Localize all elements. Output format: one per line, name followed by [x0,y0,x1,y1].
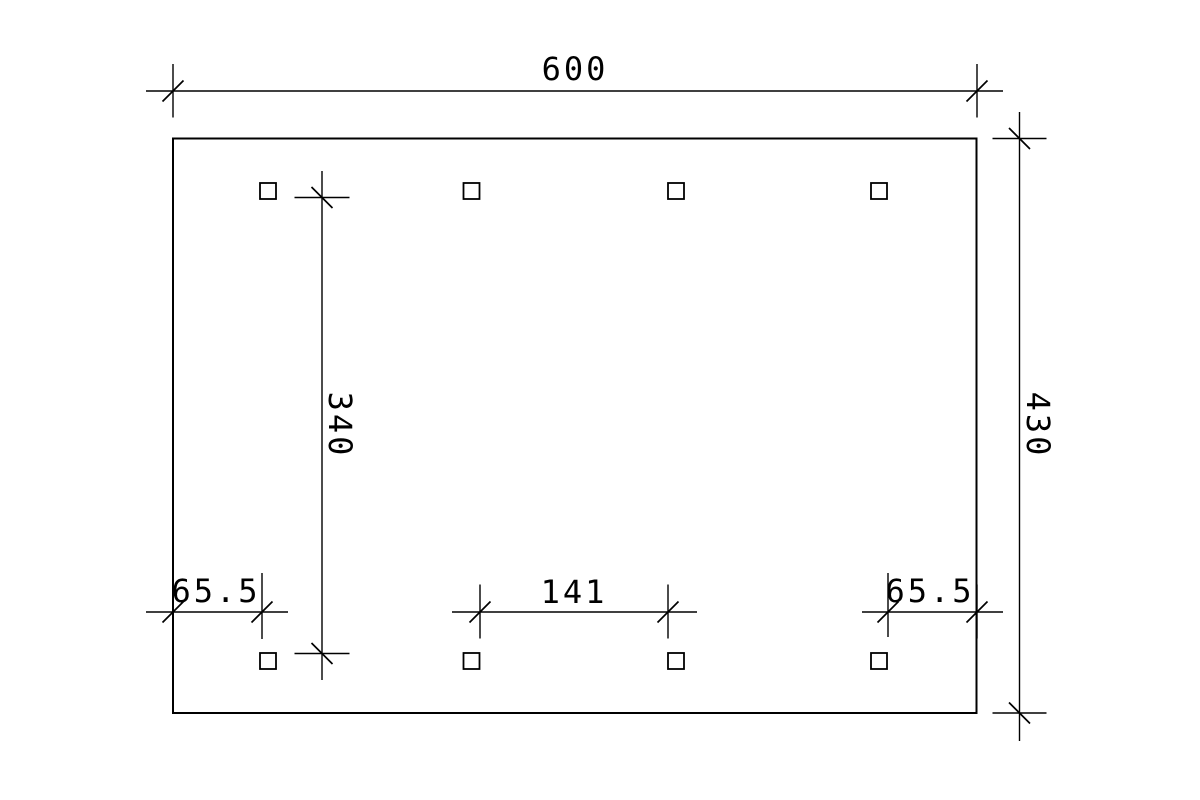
foundation-plan-drawing: 600 430 340 141 65.5 [0,0,1200,800]
post-row-bottom [260,653,887,669]
post-marker [260,183,276,199]
dimension-label-post-span: 141 [541,573,608,611]
dimension-label-post-row-spacing: 340 [321,392,359,459]
dimension-right-edge-offset: 65.5 [862,572,1003,639]
dimension-post-span: 141 [452,573,697,639]
dimension-label-overall-depth: 430 [1019,392,1057,459]
dimension-overall-depth: 430 [993,112,1058,741]
dimension-label-overall-width: 600 [542,50,609,88]
post-row-top [260,183,887,199]
dimension-label-right-edge-offset: 65.5 [885,572,974,610]
post-marker [260,653,276,669]
post-marker [668,653,684,669]
plan-svg: 600 430 340 141 65.5 [0,0,1200,800]
dimension-overall-width: 600 [146,50,1003,118]
post-marker [871,183,887,199]
post-marker [464,183,480,199]
dimension-left-edge-offset: 65.5 [146,572,288,639]
post-marker [871,653,887,669]
post-marker [668,183,684,199]
post-marker [464,653,480,669]
outer-wall-outline [173,139,977,714]
dimension-label-left-edge-offset: 65.5 [171,572,260,610]
dimension-post-row-spacing: 340 [295,171,360,680]
